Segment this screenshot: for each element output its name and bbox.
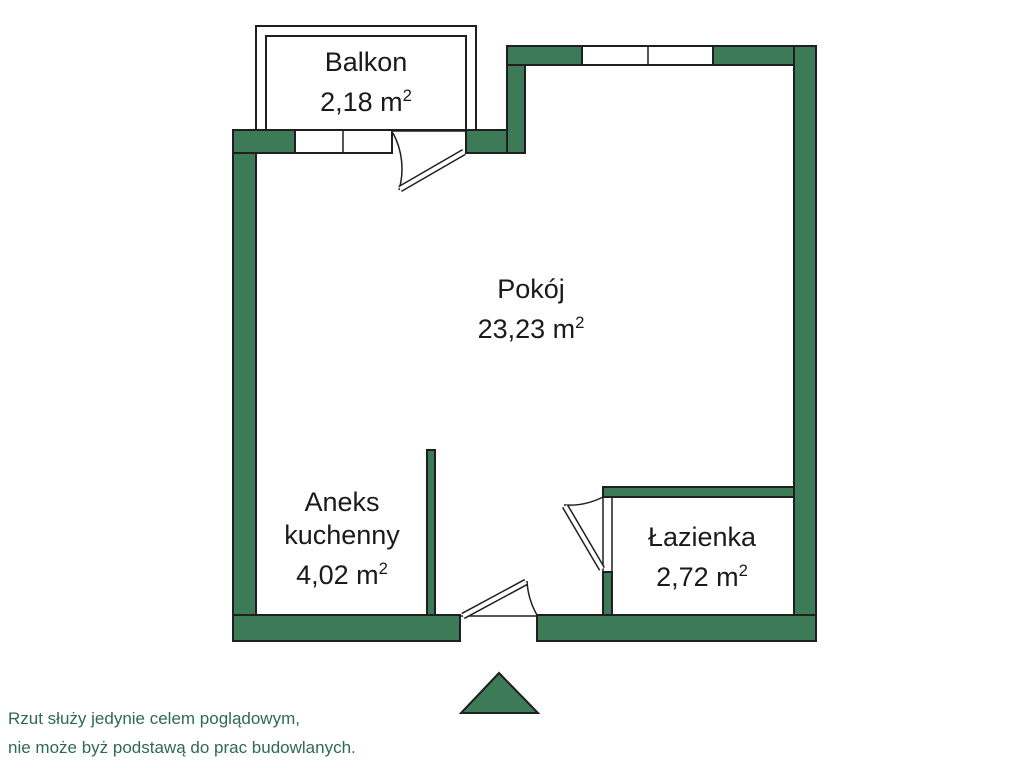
room-name: Balkon [320, 46, 412, 79]
bathroom-door [564, 497, 603, 569]
bathroom-top-wall [603, 487, 794, 497]
balcony-window [295, 130, 392, 153]
room-name: Pokój [478, 273, 585, 306]
room-area: 2,18 m2 [320, 79, 412, 119]
room-area: 2,72 m2 [648, 554, 756, 594]
area-text: 4,02 m [296, 560, 379, 590]
bottom-wall-a [233, 615, 460, 641]
kitchen-divider-wall [427, 450, 435, 615]
disclaimer-note: Rzut służy jedynie celem poglądowym, nie… [8, 704, 356, 762]
room-label-lazienka: Łazienka 2,72 m2 [648, 521, 756, 594]
area-sup: 2 [739, 561, 748, 580]
entrance-marker-icon [461, 673, 538, 713]
area-text: 23,23 m [478, 314, 576, 344]
room-name: Aneks [284, 486, 400, 519]
room-label-balkon: Balkon 2,18 m2 [320, 46, 412, 119]
room-name-line2: kuchenny [284, 519, 400, 552]
area-sup: 2 [403, 86, 412, 105]
disclaimer-line2: nie może byż podstawą do prac budowlanyc… [8, 733, 356, 762]
right-wall [794, 46, 816, 641]
entrance-door [463, 581, 537, 616]
top-right-wall-a [507, 46, 582, 65]
room-name: Łazienka [648, 521, 756, 554]
area-sup: 2 [379, 559, 388, 578]
disclaimer-line1: Rzut służy jedynie celem poglądowym, [8, 704, 356, 733]
room-label-pokoj: Pokój 23,23 m2 [478, 273, 585, 346]
bathroom-left-wall [603, 572, 612, 615]
room-area: 4,02 m2 [284, 552, 400, 592]
balcony-door [393, 133, 464, 190]
left-wall [233, 130, 256, 641]
area-text: 2,72 m [656, 562, 739, 592]
top-left-wall-a [233, 130, 295, 153]
room-label-aneks-kuchenny: Aneks kuchenny 4,02 m2 [284, 486, 400, 592]
room-area: 23,23 m2 [478, 306, 585, 346]
main-window [582, 46, 713, 65]
floorplan-drawing [0, 0, 1024, 768]
area-text: 2,18 m [320, 87, 403, 117]
bottom-wall-b [537, 615, 816, 641]
floorplan-canvas: Balkon 2,18 m2 Pokój 23,23 m2 Aneks kuch… [0, 0, 1024, 768]
area-sup: 2 [575, 313, 584, 332]
